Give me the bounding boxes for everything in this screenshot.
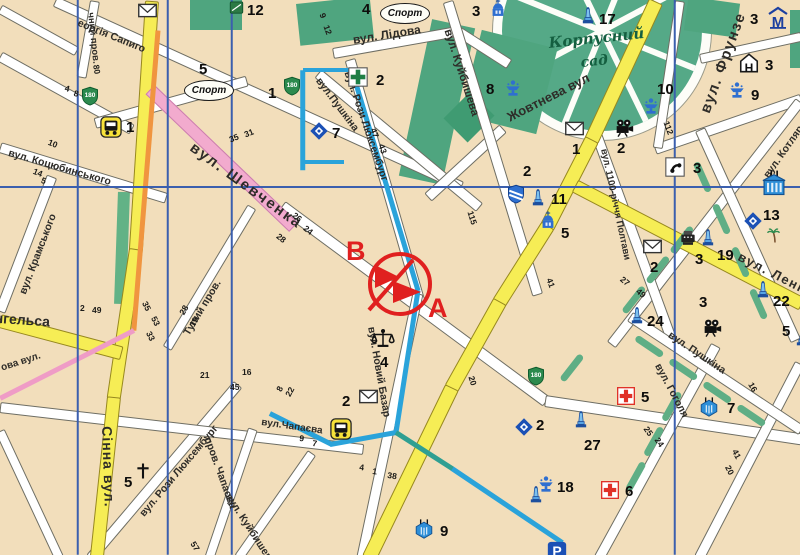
hotel-icon: Н (738, 52, 760, 74)
house-number: 1 (372, 467, 378, 476)
map-shape (230, 2, 243, 13)
map-shape (513, 416, 535, 438)
poi-number: 8 (486, 82, 494, 97)
redcross-icon (600, 480, 620, 500)
poi-number: 24 (647, 314, 664, 329)
monument-icon (578, 6, 598, 26)
map-shape (641, 96, 661, 116)
poi-number: 17 (599, 12, 616, 27)
poi-number: 18 (557, 480, 574, 495)
map-shape (503, 78, 523, 98)
poi-number: 2 (342, 394, 350, 409)
poi-number: 3 (695, 252, 703, 267)
map-shape (539, 476, 552, 491)
road-segment (234, 450, 316, 555)
poi-number: 5 (641, 390, 649, 405)
monument-icon (528, 188, 548, 208)
poi-number: 3 (693, 161, 701, 176)
map-shape (566, 122, 584, 134)
grid-line (674, 0, 676, 555)
house-number: 33 (144, 330, 156, 342)
house-number: 53 (149, 315, 161, 327)
map-shape (698, 396, 720, 418)
poi-number: 4 (362, 2, 370, 17)
grid-line (231, 0, 233, 555)
map-shape (139, 4, 157, 16)
map-shape (642, 236, 663, 257)
map-shape (506, 184, 526, 204)
house-number: 80 (92, 64, 102, 75)
poi-number: 27 (584, 438, 601, 453)
map-shape (229, 0, 244, 15)
map-shape (753, 280, 773, 300)
map-shape (571, 410, 591, 430)
map-shape (493, 0, 504, 16)
house-number: 21 (200, 371, 209, 380)
map-shape (705, 320, 722, 337)
sport-badge: Спорт (380, 3, 430, 24)
icon-glyph: Р (546, 540, 568, 555)
map-shape (632, 307, 642, 323)
map-shape (600, 480, 620, 500)
parking-icon: Р (546, 540, 568, 555)
map-shape (617, 120, 634, 137)
road-segment (0, 429, 64, 555)
diamond-icon (513, 416, 535, 438)
map-shape (760, 170, 788, 198)
poi-number: 1 (126, 120, 134, 135)
map-layer: Корпусний сад В А вул. Шевченкавул. Лідо… (0, 0, 800, 555)
badge-icon: 180 (526, 366, 546, 386)
icon-glyph: 180 (526, 366, 546, 386)
map-shape (583, 7, 593, 23)
map-shape (730, 82, 743, 97)
map-shape (703, 229, 713, 245)
redcross-icon (616, 386, 636, 406)
envelope-icon (642, 236, 663, 257)
street-label: вул. Коцюбинського (7, 148, 112, 187)
poi-number: 9 (440, 524, 448, 539)
poi-number: 13 (763, 208, 780, 223)
poi-number: 11 (551, 192, 567, 207)
map-shape (330, 418, 352, 440)
icon-glyph: М (766, 6, 790, 34)
poi-number: 7 (332, 126, 340, 141)
pharmacy-icon (347, 66, 369, 88)
mbuilding-icon: М (766, 6, 790, 30)
sport-badge: Спорт (184, 80, 234, 101)
map-shape (515, 418, 532, 435)
map-shape (137, 0, 158, 21)
map-shape (768, 229, 780, 242)
map-shape (488, 0, 508, 18)
poi-number: 1 (268, 86, 276, 101)
map-shape (701, 316, 723, 338)
map-shape (393, 281, 421, 303)
camera-icon (701, 316, 723, 338)
road-segment (163, 204, 257, 351)
poi-number: 9 (751, 88, 759, 103)
house-number: 10 (47, 138, 59, 149)
diamond-icon (742, 210, 764, 232)
bus-icon (100, 116, 122, 138)
house-number: 45 (230, 383, 239, 392)
map-shape (644, 98, 657, 113)
map-shape (758, 281, 768, 297)
map-shape (310, 122, 327, 139)
poi-number: 7 (727, 401, 735, 416)
icon-glyph: Н (738, 52, 760, 79)
annotation-letter-a: А (428, 295, 448, 322)
map-shape (742, 210, 764, 232)
fountain-icon (503, 78, 523, 98)
house-number: 4 (359, 463, 365, 472)
poi-number: 3 (750, 12, 758, 27)
map-shape (616, 386, 636, 406)
printer-icon (678, 228, 698, 248)
map-shape (763, 171, 785, 195)
map-shape (727, 80, 747, 100)
map-shape (360, 390, 378, 402)
fountain-icon (727, 80, 747, 100)
poi-number: 2 (523, 164, 531, 179)
house-number: 9 (299, 434, 305, 443)
map-shape (528, 188, 548, 208)
envelope-icon (137, 0, 158, 21)
greensq-icon (229, 0, 244, 15)
poi-number: 2 (376, 73, 384, 88)
palm-icon (766, 226, 784, 244)
map-shape (100, 116, 122, 138)
poi-number: 5 (124, 475, 132, 490)
road-median-strip (559, 353, 584, 383)
map-shape (564, 118, 585, 139)
map-shape (644, 240, 662, 252)
envelope-icon (358, 386, 379, 407)
poi-number: 4 (380, 355, 388, 370)
map-shape (413, 518, 435, 540)
house-number: 20 (467, 375, 478, 387)
poi-number: 12 (247, 3, 264, 18)
monument-icon (698, 228, 718, 248)
poi-number: 3 (472, 4, 480, 19)
fountain-icon (641, 96, 661, 116)
theater-icon (413, 518, 435, 540)
icon-glyph: 180 (282, 76, 302, 96)
map-shape (678, 228, 698, 248)
icon-glyph: 180 (80, 86, 100, 106)
house-number: 41 (545, 277, 556, 289)
map-shape (533, 189, 543, 205)
map-shape (613, 116, 635, 138)
map-shape (698, 228, 718, 248)
poi-number: 19 (717, 248, 734, 263)
route-line (303, 160, 344, 165)
poi-number: 6 (625, 484, 633, 499)
map-shape (666, 158, 684, 176)
house-number: 28 (275, 232, 288, 245)
map-shape (331, 419, 351, 439)
monument-icon (753, 280, 773, 300)
poi-number: 5 (561, 226, 569, 241)
phone-icon (664, 156, 686, 178)
map-shape (137, 464, 148, 479)
poi-number: 10 (657, 82, 674, 97)
street-label: ова вул. (0, 351, 42, 373)
map-shape (627, 306, 647, 326)
grid-line (77, 0, 79, 555)
poi-number: 1 (572, 142, 580, 157)
poi-number: 2 (536, 418, 544, 433)
map-shape (744, 212, 761, 229)
map-shape (681, 231, 694, 245)
monument-icon (627, 306, 647, 326)
map-shape (701, 397, 717, 416)
house-number: 2 (80, 304, 85, 313)
poi-number: 2 (617, 141, 625, 156)
map-shape (602, 482, 619, 499)
map-shape (576, 411, 586, 427)
map-shape (766, 226, 784, 244)
poi-number: 22 (773, 294, 790, 309)
street-label: Сінна вул. (100, 426, 117, 508)
bus-icon (330, 418, 352, 440)
house-number: 57 (189, 540, 201, 553)
map-shape (536, 474, 556, 494)
house-number: 7 (312, 439, 318, 448)
map-shape (543, 211, 554, 228)
map-shape (358, 386, 379, 407)
map-shape (792, 328, 800, 348)
grid-line (0, 186, 800, 188)
church-icon (538, 210, 558, 230)
badge-icon: 180 (282, 76, 302, 96)
map-shape (618, 388, 635, 405)
envelope-icon (564, 118, 585, 139)
theaterBig-icon (760, 170, 788, 198)
house-number: 38 (387, 471, 398, 481)
house-number: 16 (242, 368, 251, 377)
house-number: 22 (284, 386, 296, 398)
map-shape (664, 156, 686, 178)
park-name-line2: сад (580, 53, 609, 70)
street-label: Енгельса (0, 310, 50, 328)
poi-number: 5 (199, 62, 207, 77)
map-shape (578, 6, 598, 26)
map-shape (308, 120, 330, 142)
map-shape (506, 80, 519, 95)
diamond-icon (308, 120, 330, 142)
map-shape (349, 68, 367, 86)
shield-icon (506, 184, 526, 204)
map-shape (416, 519, 432, 538)
camera-icon (613, 116, 635, 138)
theater-icon (698, 396, 720, 418)
annotation-letter-b: В (346, 238, 366, 265)
crossT-icon (134, 462, 152, 480)
map-shape (101, 117, 121, 137)
monument-icon (792, 328, 800, 348)
map-shape (509, 185, 524, 203)
monument-icon (571, 410, 591, 430)
map-shape (347, 66, 369, 88)
house-number: 115 (466, 210, 478, 226)
grid-line (167, 0, 169, 555)
house-number: 27 (619, 275, 632, 288)
poi-number: 3 (765, 58, 773, 73)
city-map-canvas[interactable]: Корпусний сад В А вул. Шевченкавул. Лідо… (0, 0, 800, 555)
poi-number: 3 (699, 295, 707, 310)
poi-number: 2 (650, 260, 658, 275)
house-number: 49 (92, 306, 101, 315)
house-number: 35 (228, 132, 240, 143)
poi-number: 5 (782, 324, 790, 339)
map-shape (538, 210, 558, 230)
church-icon (488, 0, 508, 18)
house-number: 47 (369, 127, 380, 139)
house-number: 20 (723, 464, 735, 476)
house-number: 35 (140, 300, 152, 312)
badge-icon: 180 (80, 86, 100, 106)
fountain-icon (536, 474, 556, 494)
house-number: 31 (243, 127, 255, 138)
house-number: 41 (730, 448, 742, 460)
map-shape (134, 462, 152, 480)
